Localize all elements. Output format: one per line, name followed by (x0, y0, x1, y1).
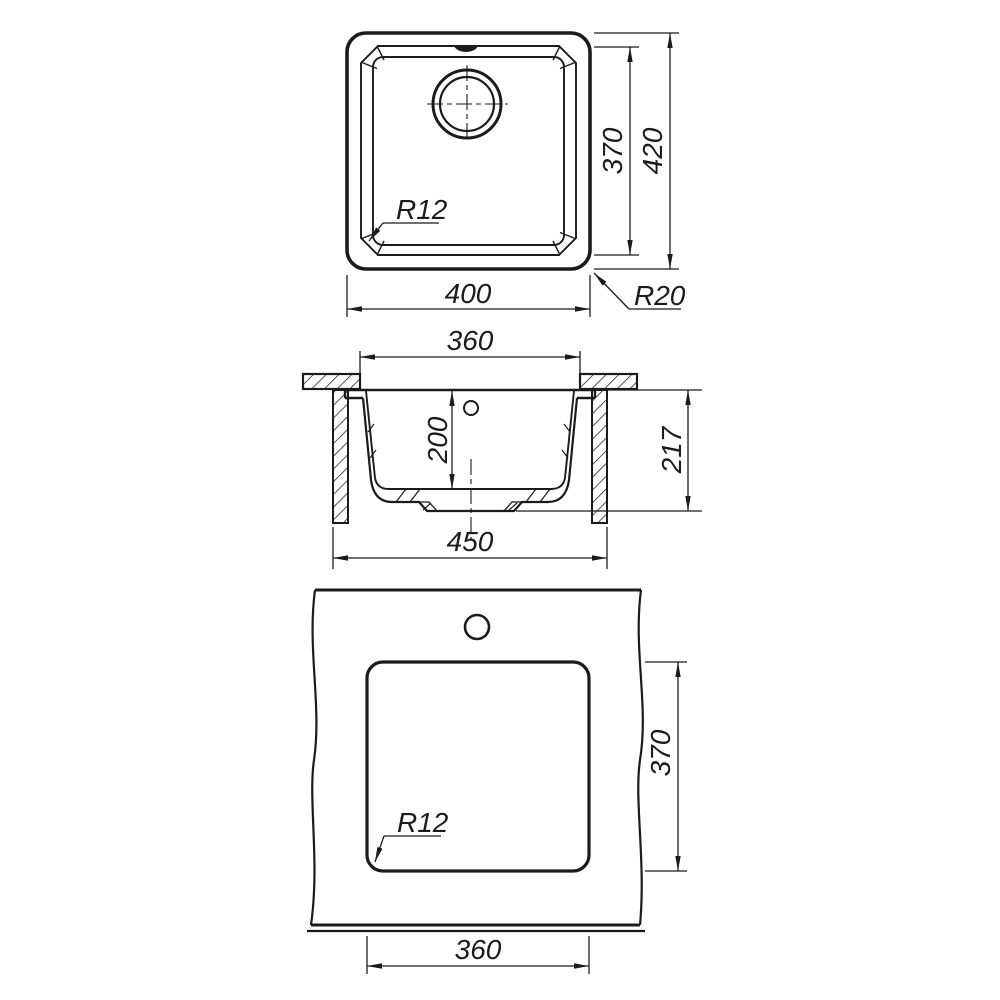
top-view: R12 R20 400 370 420 (347, 33, 686, 317)
label-outer-radius: R20 (594, 273, 686, 311)
cutout-view: R12 370 360 (307, 590, 687, 974)
dimension-text: 217 (656, 425, 687, 474)
dimension-text: 370 (645, 729, 676, 776)
label-cutout-radius: R12 (375, 807, 449, 862)
countertop-break-edge-right (638, 590, 643, 925)
overflow-hole (464, 401, 478, 415)
dimension-text: 370 (597, 127, 628, 174)
faucet-hole (465, 615, 489, 639)
cabinet-panel-left (333, 390, 348, 523)
leader-line (594, 273, 629, 309)
dimension-text: 200 (422, 416, 453, 464)
cutout-outline (367, 662, 589, 871)
cutout-radius-text: R12 (397, 807, 449, 838)
bowl-inner-wall (366, 391, 574, 489)
dimension-width-400: 400 (347, 275, 590, 317)
countertop-section-left (303, 374, 360, 389)
sink-outer-outline (347, 33, 590, 269)
dimension-text: 360 (455, 934, 502, 965)
countertop-section-right (580, 374, 637, 389)
dimension-overall-height-217: 217 (516, 390, 702, 511)
sink-rim-section (345, 390, 595, 398)
dimension-text: 420 (637, 127, 668, 174)
sink-technical-drawing: R12 R20 400 370 420 (0, 0, 1000, 1000)
bowl-radius-text: R12 (396, 194, 448, 225)
dimension-bowl-top-width-360: 360 (360, 325, 580, 386)
dimension-cutout-width-360: 360 (367, 934, 589, 974)
countertop-break-edge-left (311, 590, 316, 925)
dimension-text: 360 (447, 325, 494, 356)
cabinet-panel-right (592, 390, 607, 523)
leader-line (375, 836, 384, 862)
dimension-text: 400 (445, 278, 492, 309)
wall-hatch-ticks (368, 424, 570, 510)
dimension-bowl-depth-200: 200 (422, 391, 453, 489)
dimension-text: 450 (447, 526, 494, 557)
drawing-canvas: R12 R20 400 370 420 (0, 0, 1000, 1000)
outer-radius-text: R20 (634, 280, 686, 311)
section-view: 360 200 217 450 (303, 325, 702, 569)
dimension-cutout-height-370: 370 (645, 662, 687, 871)
dimension-bowl-height-370: 370 (594, 47, 639, 255)
dimension-base-width-450: 450 (333, 526, 607, 569)
